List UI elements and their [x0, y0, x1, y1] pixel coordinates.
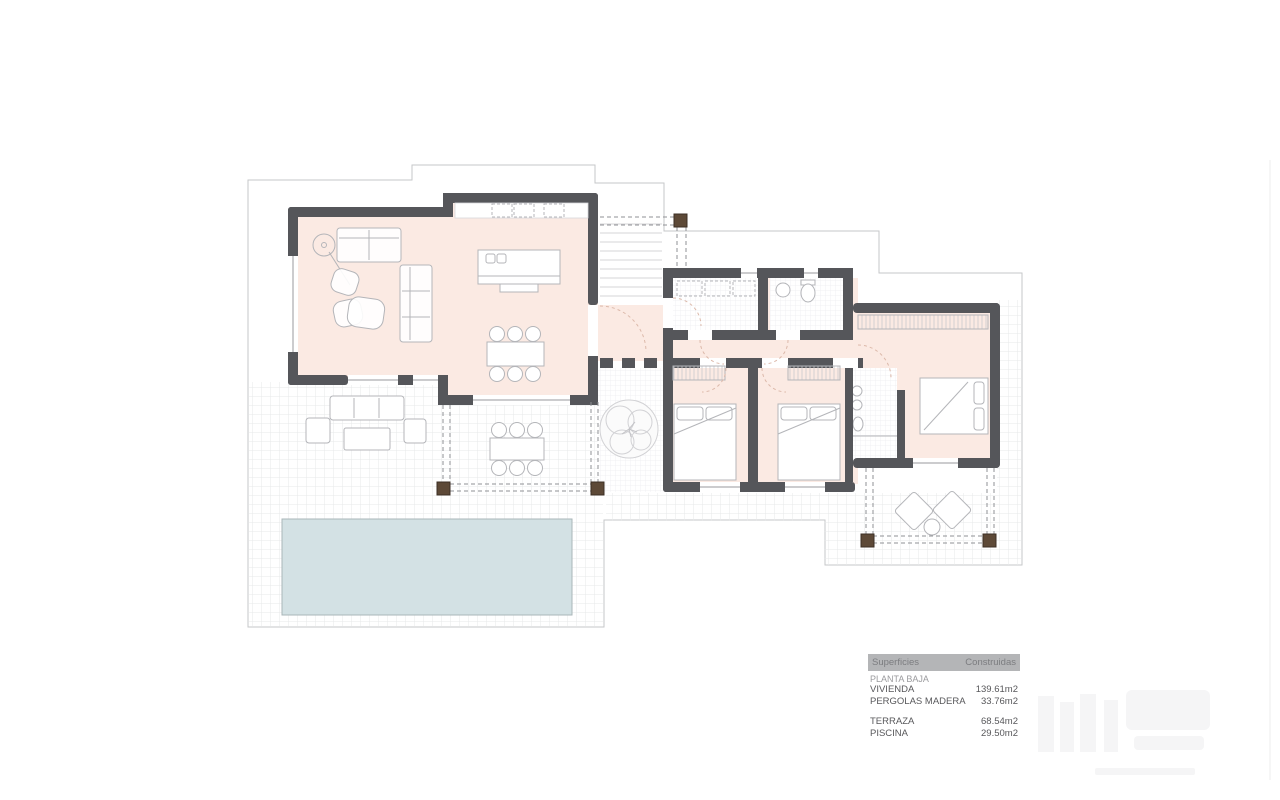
- chair: [510, 423, 525, 438]
- outdoor-dining-set: [490, 423, 544, 476]
- entry-steps: [600, 224, 662, 296]
- chair: [526, 327, 541, 342]
- pool: [282, 519, 572, 615]
- sink: [486, 254, 495, 263]
- bed-2: [778, 404, 840, 480]
- surface-row: TERRAZA 68.54m2: [868, 716, 1020, 728]
- surfaces-header-col2: Construidas: [965, 657, 1016, 669]
- wardrobe: [788, 366, 840, 380]
- surfaces-section-label: PLANTA BAJA: [870, 675, 1020, 684]
- dining-table: [487, 342, 544, 366]
- surface-row: VIVIENDA 139.61m2: [868, 684, 1020, 696]
- surface-value: 29.50m2: [981, 728, 1018, 740]
- tree: [600, 400, 658, 458]
- chair: [508, 367, 523, 382]
- chair: [528, 461, 543, 476]
- outdoor-armchair: [306, 418, 330, 443]
- laundry-room: [673, 278, 758, 332]
- washbasin: [852, 386, 862, 396]
- washbasin: [852, 400, 862, 410]
- surface-row: PERGOLAS MADERA 33.76m2: [868, 696, 1020, 708]
- pergola-post: [437, 482, 450, 495]
- surfaces-table-header: Superficies Construidas: [868, 654, 1020, 671]
- outdoor-coffee-table: [344, 428, 390, 450]
- pergola-post: [674, 214, 687, 227]
- surface-value: 33.76m2: [981, 696, 1018, 708]
- sink: [497, 254, 506, 263]
- washbasin: [776, 283, 790, 297]
- floorplan-drawing: [0, 0, 1280, 800]
- sofa-2: [400, 265, 432, 342]
- watermark: [1038, 690, 1210, 775]
- toilet: [801, 284, 815, 302]
- chair: [490, 367, 505, 382]
- pergola-post: [591, 482, 604, 495]
- chair: [490, 327, 505, 342]
- wardrobe: [673, 366, 725, 380]
- master-bed: [920, 378, 988, 434]
- chair: [510, 461, 525, 476]
- chair: [508, 327, 523, 342]
- floorplan-sheet: Superficies Construidas PLANTA BAJA VIVI…: [0, 0, 1280, 800]
- surface-value: 139.61m2: [976, 684, 1018, 696]
- outdoor-table: [490, 438, 544, 460]
- bathroom-2: [848, 368, 897, 464]
- outdoor-armchair: [404, 419, 426, 443]
- bathroom-1: [770, 278, 843, 332]
- sofa: [337, 228, 401, 262]
- chair: [528, 423, 543, 438]
- surfaces-header-col1: Superficies: [872, 657, 919, 669]
- chair: [492, 423, 507, 438]
- outdoor-sofa: [330, 396, 404, 420]
- indoor-dining-set: [487, 327, 544, 382]
- pergola-post: [983, 534, 996, 547]
- chair: [526, 367, 541, 382]
- surface-value: 68.54m2: [981, 716, 1018, 728]
- bed-1: [674, 404, 736, 480]
- surface-row: PISCINA 29.50m2: [868, 728, 1020, 740]
- wardrobe: [858, 315, 988, 329]
- chair: [492, 461, 507, 476]
- surface-label: TERRAZA: [870, 716, 914, 728]
- side-table: [924, 519, 940, 535]
- courtyard: [598, 368, 663, 492]
- surface-label: VIVIENDA: [870, 684, 914, 696]
- surfaces-table: Superficies Construidas PLANTA BAJA VIVI…: [868, 654, 1020, 739]
- surface-label: PERGOLAS MADERA: [870, 696, 966, 708]
- toilet: [853, 417, 863, 431]
- pergola-post: [861, 534, 874, 547]
- coffee-table: [346, 296, 386, 331]
- surface-label: PISCINA: [870, 728, 908, 740]
